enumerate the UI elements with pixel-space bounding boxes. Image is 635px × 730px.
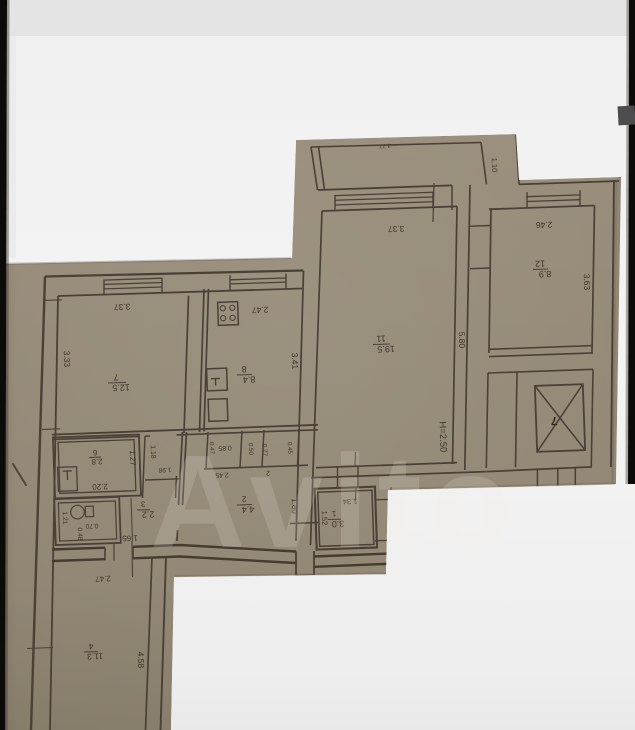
- svg-text:1.65: 1.65: [122, 533, 138, 543]
- svg-text:2.47: 2.47: [251, 305, 268, 316]
- svg-text:8.9: 8.9: [539, 269, 552, 279]
- svg-text:4: 4: [88, 641, 93, 651]
- svg-text:8.4: 8.4: [243, 374, 256, 384]
- svg-text:3.37: 3.37: [387, 224, 404, 235]
- svg-text:19.5: 19.5: [377, 344, 395, 355]
- svg-text:4.58: 4.58: [136, 651, 147, 668]
- svg-text:3.41: 3.41: [290, 352, 301, 369]
- svg-text:2.46: 2.46: [535, 220, 552, 231]
- svg-text:Avito: Avito: [150, 428, 520, 575]
- svg-text:2.20: 2.20: [92, 482, 108, 492]
- svg-text:8: 8: [241, 364, 246, 374]
- svg-text:7: 7: [113, 372, 118, 382]
- svg-text:3.33: 3.33: [62, 350, 73, 367]
- svg-text:1.21: 1.21: [61, 512, 68, 525]
- svg-text:2.47: 2.47: [95, 574, 111, 584]
- svg-text:3.77: 3.77: [378, 142, 391, 148]
- svg-text:11: 11: [376, 334, 386, 344]
- svg-text:0.70: 0.70: [85, 522, 98, 529]
- svg-text:12.5: 12.5: [112, 382, 130, 393]
- svg-text:3.37: 3.37: [113, 302, 130, 313]
- svg-text:12: 12: [535, 259, 545, 269]
- svg-text:3.63: 3.63: [582, 273, 593, 290]
- svg-text:11.3: 11.3: [87, 651, 104, 662]
- svg-text:7: 7: [550, 414, 557, 428]
- svg-text:5.80: 5.80: [457, 331, 468, 348]
- svg-text:1.27: 1.27: [128, 450, 138, 466]
- svg-text:2.8: 2.8: [91, 457, 103, 466]
- svg-text:1.10: 1.10: [490, 157, 500, 172]
- svg-text:0.48: 0.48: [76, 528, 83, 541]
